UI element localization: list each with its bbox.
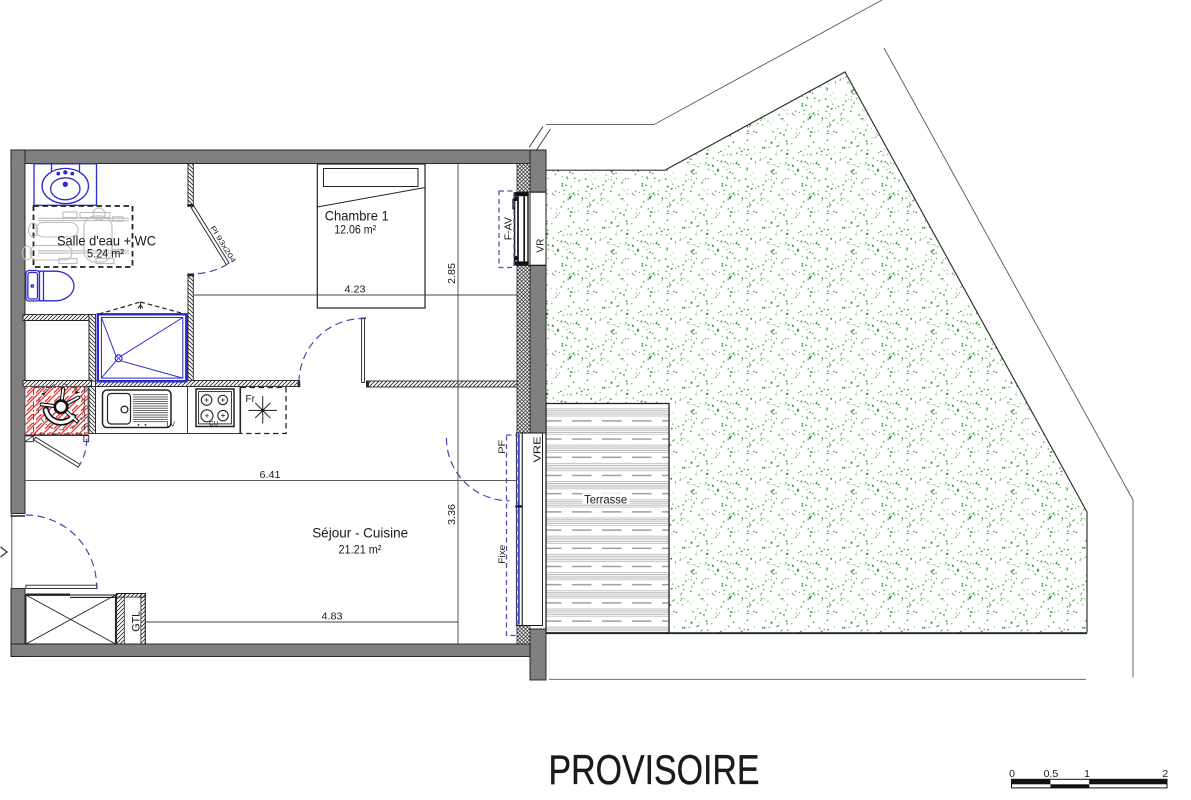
svg-text:0.5: 0.5: [1044, 768, 1059, 780]
svg-text:12.06 m²: 12.06 m²: [334, 223, 376, 237]
svg-text:5.24 m²: 5.24 m²: [87, 247, 124, 261]
svg-text:Fr: Fr: [246, 394, 256, 405]
svg-text:Chambre 1: Chambre 1: [325, 208, 389, 224]
svg-text:F-AV: F-AV: [503, 217, 515, 240]
svg-text:PF: PF: [497, 440, 508, 454]
svg-text:CU: CU: [209, 420, 219, 427]
svg-text:LV: LV: [167, 420, 176, 429]
svg-text:4.23: 4.23: [345, 283, 366, 295]
svg-text:3.36: 3.36: [446, 504, 458, 525]
svg-text:GTL: GTL: [131, 611, 143, 632]
svg-text:6.41: 6.41: [260, 469, 281, 481]
svg-text:Fixe: Fixe: [497, 545, 508, 564]
svg-text:VRE: VRE: [532, 437, 544, 463]
svg-text:2: 2: [1162, 768, 1168, 780]
svg-text:0: 0: [1009, 768, 1015, 780]
svg-text:VR: VR: [535, 238, 547, 252]
svg-text:21.21 m²: 21.21 m²: [339, 543, 382, 557]
svg-text:Séjour - Cuisine: Séjour - Cuisine: [312, 525, 408, 541]
svg-text:1: 1: [1084, 768, 1090, 780]
svg-text:PROVISOIRE: PROVISOIRE: [549, 746, 760, 793]
svg-text:2.85: 2.85: [446, 263, 458, 284]
svg-text:4.83: 4.83: [322, 611, 343, 623]
svg-text:Terrasse: Terrasse: [584, 493, 627, 507]
